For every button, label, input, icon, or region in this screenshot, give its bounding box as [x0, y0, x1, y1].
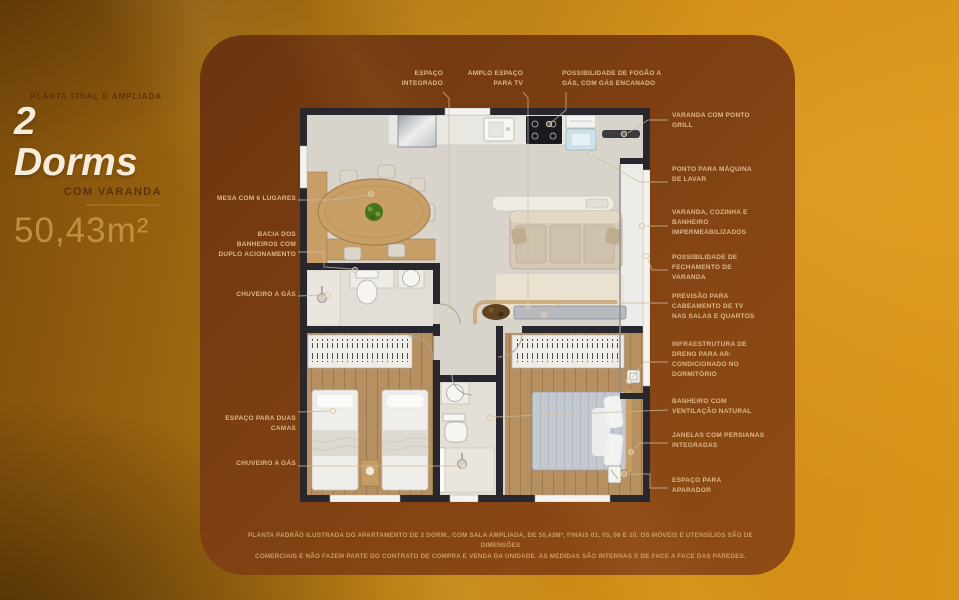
title-block: PLANTA FINAL E AMPLIADA 2 Dorms COM VARA… — [14, 92, 162, 248]
callout-dreno-ar-condicionado: INFRAESTRUTURA DE DRENO PARA AR-CONDICIO… — [672, 340, 764, 380]
kitchen-sink — [484, 118, 514, 141]
dining — [305, 165, 435, 266]
grill-shelf — [602, 130, 640, 138]
callout-fogao-gas: POSSIBILIDADE DE FOGÃO A GÁS, COM GÁS EN… — [562, 69, 670, 89]
refrigerator — [398, 115, 436, 147]
wardrobe-2 — [512, 335, 624, 368]
callout-espaco-aparador: ESPAÇO PARA APARADOR — [672, 476, 762, 496]
washer-space — [566, 115, 596, 128]
shower-2-area — [441, 448, 494, 492]
double-bed — [532, 390, 632, 472]
nightstand — [361, 460, 379, 486]
callout-varanda-grill: VARANDA COM PONTO GRILL — [672, 111, 772, 131]
plan-area: 50,43m² — [14, 213, 162, 248]
plan-eyebrow: PLANTA FINAL E AMPLIADA — [14, 92, 162, 101]
callout-espaco-integrado: ESPAÇO INTEGRADO — [385, 69, 443, 89]
callout-maquina-lavar: PONTO PARA MÁQUINA DE LAVAR — [672, 165, 762, 185]
callout-cabeamento-tv: PREVISÃO PARA CABEAMENTO DE TV NAS SALAS… — [672, 292, 758, 322]
single-bed-1 — [312, 390, 358, 490]
table-plant — [365, 203, 383, 221]
callout-mesa-6-lugares: MESA COM 6 LUGARES — [216, 194, 296, 204]
disclaimer-line-2: COMERCIAIS E NÃO FAZEM PARTE DO CONTRATO… — [228, 552, 773, 562]
callout-amplo-espaco-tv: AMPLO ESPAÇO PARA TV — [455, 69, 523, 89]
callout-persianas-integradas: JANELAS COM PERSIANAS INTEGRADAS — [672, 431, 767, 451]
callout-fechamento-varanda: POSSIBILIDADE DE FECHAMENTO DE VARANDA — [672, 253, 762, 283]
disclaimer-line-1: PLANTA PADRÃO ILUSTRADA DO APARTAMENTO D… — [228, 531, 773, 552]
tv-sideboard — [514, 306, 626, 319]
cooktop — [526, 116, 562, 144]
disclaimer: PLANTA PADRÃO ILUSTRADA DO APARTAMENTO D… — [228, 531, 773, 562]
wardrobe-1 — [308, 335, 412, 368]
laundry-tank — [566, 129, 596, 150]
sofa — [510, 211, 622, 269]
plan-subtitle: COM VARANDA — [14, 186, 162, 198]
ac-drain-point — [627, 370, 640, 383]
single-bed-2 — [382, 390, 428, 490]
callout-espaco-duas-camas: ESPAÇO PARA DUAS CAMAS — [216, 414, 296, 434]
floor-plan — [300, 108, 650, 502]
callout-impermeabilizados: VARANDA, COZINHA E BANHEIRO IMPERMEABILI… — [672, 208, 772, 238]
plan-title: 2 Dorms — [14, 102, 162, 184]
toilet-2 — [443, 414, 467, 442]
headboard — [626, 390, 632, 472]
washbasin-1 — [398, 268, 424, 288]
callout-bacia-duplo-acionamento: BACIA DOS BANHEIROS COM DUPLO ACIONAMENT… — [216, 230, 296, 260]
decor-plant — [482, 304, 510, 320]
callout-chuveiro-gas-2: CHUVEIRO A GÁS — [216, 459, 296, 469]
callout-chuveiro-gas-1: CHUVEIRO A GÁS — [216, 290, 296, 300]
poster: PLANTA FINAL E AMPLIADA 2 Dorms COM VARA… — [0, 0, 959, 600]
callout-ventilacao-natural: BANHEIRO COM VENTILAÇÃO NATURAL — [672, 397, 772, 417]
aparador-space — [608, 466, 621, 483]
toilet-1 — [356, 270, 378, 304]
title-divider — [86, 204, 162, 206]
